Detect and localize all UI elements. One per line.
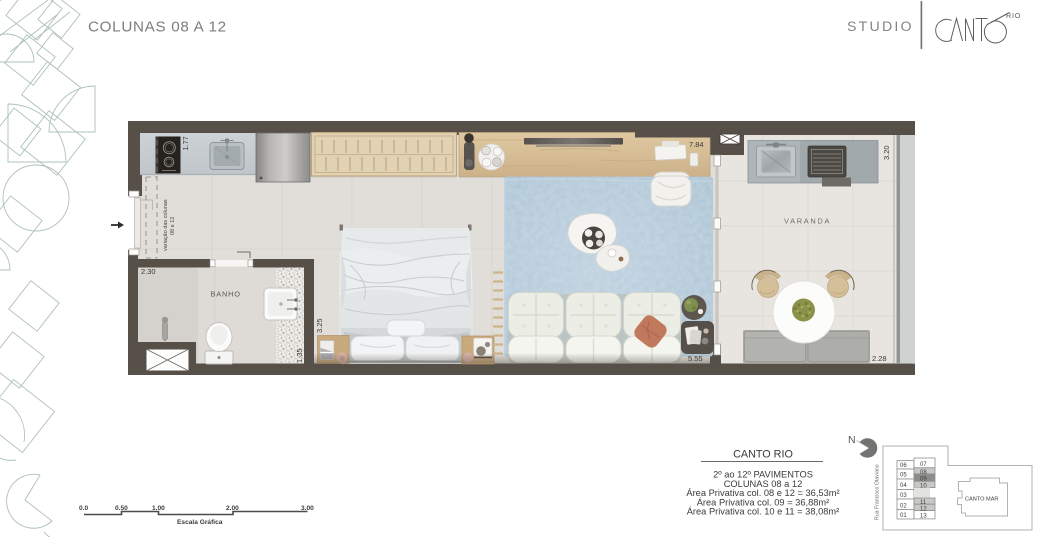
svg-text:0.0: 0.0 — [79, 505, 88, 512]
svg-text:CANTO MAR: CANTO MAR — [965, 497, 998, 503]
svg-text:03: 03 — [900, 493, 907, 499]
svg-text:05: 05 — [900, 473, 907, 479]
svg-text:11: 11 — [920, 500, 927, 506]
svg-text:STUDIO: STUDIO — [847, 19, 914, 35]
svg-text:09: 09 — [920, 477, 927, 483]
svg-text:RIO: RIO — [1006, 11, 1021, 20]
svg-text:COLUNAS 08 A 12: COLUNAS 08 A 12 — [88, 19, 227, 36]
svg-text:2.30: 2.30 — [141, 267, 156, 276]
svg-text:12: 12 — [920, 506, 927, 512]
svg-text:VARANDA: VARANDA — [784, 217, 831, 226]
svg-text:3.25: 3.25 — [315, 318, 324, 333]
svg-text:CANTO RIO: CANTO RIO — [733, 449, 793, 461]
svg-text:2.28: 2.28 — [872, 354, 887, 363]
svg-text:08 e 12: 08 e 12 — [170, 217, 176, 235]
svg-text:variação das colunas: variação das colunas — [163, 199, 169, 251]
svg-text:10: 10 — [920, 484, 927, 490]
svg-text:N: N — [848, 434, 856, 446]
svg-text:02: 02 — [900, 504, 907, 510]
svg-text:07: 07 — [920, 462, 927, 468]
svg-text:3.20: 3.20 — [882, 145, 891, 160]
svg-text:Escala Gráfica: Escala Gráfica — [177, 519, 223, 526]
svg-text:7.84: 7.84 — [689, 140, 704, 149]
svg-text:1.77: 1.77 — [181, 136, 190, 150]
svg-text:Área Privativa col. 10 e 11 =: Área Privativa col. 10 e 11 = 38,08m² — [687, 507, 840, 517]
svg-text:06: 06 — [900, 463, 907, 469]
svg-text:08: 08 — [920, 470, 927, 476]
svg-text:5.55: 5.55 — [688, 354, 703, 363]
svg-text:04: 04 — [900, 483, 907, 489]
svg-text:13: 13 — [920, 514, 927, 520]
svg-text:01: 01 — [900, 513, 907, 519]
svg-text:BANHO: BANHO — [211, 290, 241, 299]
svg-text:Rua Francisco Otaviano: Rua Francisco Otaviano — [875, 464, 881, 520]
svg-text:1.35: 1.35 — [295, 348, 304, 363]
